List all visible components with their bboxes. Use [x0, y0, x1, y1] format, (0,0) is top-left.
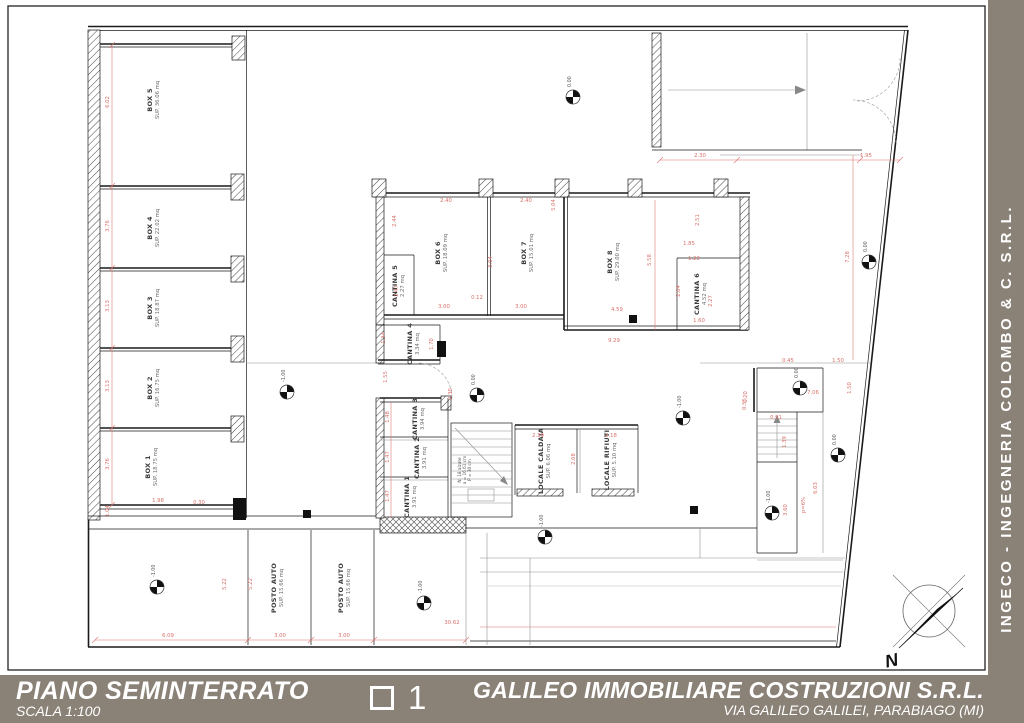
room-label: POSTO AUTOSUP. 15.66 mq — [270, 563, 285, 613]
engineering-firm-band: INGECO - INGEGNERIA COLOMBO & C. S.R.L. — [988, 0, 1024, 723]
floor-plan-drawing: BOX 5SUP. 36.06 mqBOX 4SUP. 22.02 mqBOX … — [0, 0, 1024, 723]
dimension-label: 2.30 — [448, 387, 454, 399]
svg-text:SUP. 15.01 mq: SUP. 15.01 mq — [529, 234, 535, 272]
svg-text:SUP. 6.06 mq: SUP. 6.06 mq — [546, 444, 552, 479]
dimension-label: 5.22 — [222, 578, 228, 590]
dimension-label: 5.58 — [647, 253, 653, 265]
dimension-label: 1.95 — [860, 153, 872, 159]
dimension-label: 6.03 — [813, 482, 819, 494]
dimension-label: 3.00 — [515, 304, 527, 310]
dimension-label: 1.50 — [832, 358, 844, 364]
scale-label: SCALA 1:100 — [16, 704, 309, 719]
svg-text:SUP. 18.09 mq: SUP. 18.09 mq — [443, 234, 449, 272]
svg-text:SUP. 36.06 mq: SUP. 36.06 mq — [155, 81, 161, 119]
stair-note: N. 18 alzatea = 16.61 cmP = 30 cm — [457, 456, 472, 484]
dimension-label: 1.47 — [385, 451, 391, 463]
svg-text:CANTINA 1: CANTINA 1 — [403, 476, 411, 518]
dimension-label: 3.00 — [274, 633, 286, 639]
dimension-label: 1.47 — [385, 490, 391, 502]
dimension-label: 0.30 — [193, 500, 205, 506]
svg-text:BOX 3: BOX 3 — [146, 296, 154, 320]
svg-text:0.00: 0.00 — [471, 374, 477, 385]
dimension-label: 5.04 — [551, 198, 557, 210]
dimension-label: 2.39 — [532, 433, 544, 439]
dimension-label: 1.34 — [381, 331, 387, 343]
svg-text:3.34 mq: 3.34 mq — [415, 333, 421, 355]
dimension-label: 2.51 — [695, 214, 701, 226]
dimension-label: 3.76 — [105, 219, 111, 231]
dimension-label: 4.59 — [611, 307, 623, 313]
dimension-label: 3.13 — [105, 380, 111, 392]
dimension-label: 6.02 — [105, 96, 111, 108]
dimension-label: 1.39 — [782, 436, 788, 448]
dimension-label: 5.22 — [248, 578, 254, 590]
svg-text:2.27 mq: 2.27 mq — [400, 275, 406, 297]
svg-text:SUP. 16.75 mq: SUP. 16.75 mq — [155, 369, 161, 407]
dimension-label: 1.60 — [693, 318, 705, 324]
svg-text:SUP. 15.66 mq: SUP. 15.66 mq — [279, 569, 285, 607]
dimension-label: 1.50 — [847, 381, 853, 393]
svg-text:-1.00: -1.00 — [766, 491, 772, 503]
dimension-label: 1.98 — [152, 498, 164, 504]
dimension-label: 1.55 — [383, 371, 389, 383]
svg-text:0.00: 0.00 — [567, 76, 573, 87]
dimension-label: 0.55 — [742, 398, 748, 410]
dimension-label: 0.91 — [770, 415, 782, 421]
dimension-label: 3.76 — [105, 457, 111, 469]
svg-text:BOX 7: BOX 7 — [520, 241, 528, 265]
dimension-label: 7.28 — [845, 250, 851, 262]
svg-text:POSTO AUTO: POSTO AUTO — [270, 563, 278, 613]
svg-text:3.94 mq: 3.94 mq — [420, 408, 426, 430]
svg-text:3.91 mq: 3.91 mq — [422, 447, 428, 469]
column — [303, 510, 311, 518]
dimension-label: 2.27 — [708, 295, 714, 307]
dimension-label: 1.70 — [429, 337, 435, 349]
dimension-label: 7.06 — [807, 390, 819, 396]
column — [629, 315, 637, 323]
engineering-firm-name: INGECO - INGEGNERIA COLOMBO & C. S.R.L. — [998, 205, 1015, 633]
dimension-label: 1.22 — [688, 256, 700, 262]
svg-text:0.00: 0.00 — [794, 367, 800, 378]
svg-text:BOX 1: BOX 1 — [144, 455, 152, 479]
dimension-label: 3.13 — [105, 300, 111, 312]
company-address: VIA GALILEO GALILEI, PARABIAGO (MI) — [473, 703, 984, 718]
svg-text:-1.00: -1.00 — [281, 370, 287, 382]
svg-text:BOX 2: BOX 2 — [146, 376, 154, 400]
svg-text:P = 30 cm: P = 30 cm — [467, 459, 472, 481]
dimension-label: p=6% — [801, 497, 807, 513]
dimension-label: 3.60 — [783, 503, 789, 515]
dimension-label: 2.30 — [694, 153, 706, 159]
svg-text:SUP. 22.02 mq: SUP. 22.02 mq — [155, 209, 161, 247]
svg-text:0.00: 0.00 — [832, 434, 838, 445]
svg-text:0.00: 0.00 — [863, 241, 869, 252]
svg-text:BOX 5: BOX 5 — [146, 88, 154, 112]
drawing-sheet: BOX 5SUP. 36.06 mqBOX 4SUP. 22.02 mqBOX … — [0, 0, 1024, 723]
dimension-label: 2.40 — [440, 198, 452, 204]
dimension-label: 2.18 — [605, 433, 617, 439]
svg-text:SUP. 18.75 mq: SUP. 18.75 mq — [153, 448, 159, 486]
dimension-label: 3.00 — [338, 633, 350, 639]
column — [690, 506, 698, 514]
svg-text:SUP. 15.66 mq: SUP. 15.66 mq — [346, 569, 352, 607]
svg-text:BOX 4: BOX 4 — [146, 216, 154, 240]
svg-text:POSTO AUTO: POSTO AUTO — [337, 563, 345, 613]
svg-text:-1.00: -1.00 — [418, 581, 424, 593]
svg-text:-1.00: -1.00 — [151, 565, 157, 577]
svg-text:SUP. 18.87 mq: SUP. 18.87 mq — [155, 289, 161, 327]
sheet-number: 1 — [408, 683, 426, 713]
dimension-label: 1.48 — [385, 410, 391, 422]
dimension-label: 3.04 — [488, 255, 494, 267]
svg-text:BOX 8: BOX 8 — [606, 250, 614, 274]
svg-text:-1.00: -1.00 — [677, 396, 683, 408]
dimension-label: 1.85 — [683, 241, 695, 247]
dimension-label: 0.45 — [782, 358, 794, 364]
dimension-label: 30.62 — [444, 620, 459, 626]
svg-text:3.91 mq: 3.91 mq — [412, 486, 418, 508]
dimension-label: 2.08 — [571, 452, 577, 464]
dimension-label: 9.29 — [608, 338, 620, 344]
svg-text:CANTINA 2: CANTINA 2 — [413, 437, 421, 479]
svg-text:SUP. 29.00 mq: SUP. 29.00 mq — [615, 243, 621, 281]
page-title: PIANO SEMINTERRATO — [16, 678, 309, 704]
sheet-number-icon — [370, 686, 394, 710]
dimension-label: 2.04 — [676, 284, 682, 296]
svg-text:BOX 6: BOX 6 — [434, 241, 442, 265]
title-block: PIANO SEMINTERRATO SCALA 1:100 1 GALILEO… — [0, 675, 1024, 723]
svg-text:CANTINA 3: CANTINA 3 — [411, 398, 419, 440]
svg-text:-1.00: -1.00 — [539, 515, 545, 527]
company-name: GALILEO IMMOBILIARE COSTRUZIONI S.R.L. — [473, 678, 984, 703]
dimension-label: 2.40 — [520, 198, 532, 204]
dimension-label: 1.04 — [105, 504, 111, 516]
svg-text:SUP. 5.10 mq: SUP. 5.10 mq — [612, 443, 618, 478]
dimension-label: 0.12 — [471, 295, 483, 301]
svg-text:CANTINA 4: CANTINA 4 — [406, 323, 414, 365]
dimension-label: 3.00 — [438, 304, 450, 310]
dimension-label: 2.47 — [394, 285, 400, 297]
room-label: POSTO AUTOSUP. 15.66 mq — [337, 563, 352, 613]
stair-note-text: N. 18 alzatea = 16.61 cmP = 30 cm — [457, 456, 472, 484]
dimension-label: 2.44 — [392, 214, 398, 226]
svg-text:CANTINA 6: CANTINA 6 — [693, 273, 701, 315]
dimension-label: 6.09 — [162, 633, 174, 639]
